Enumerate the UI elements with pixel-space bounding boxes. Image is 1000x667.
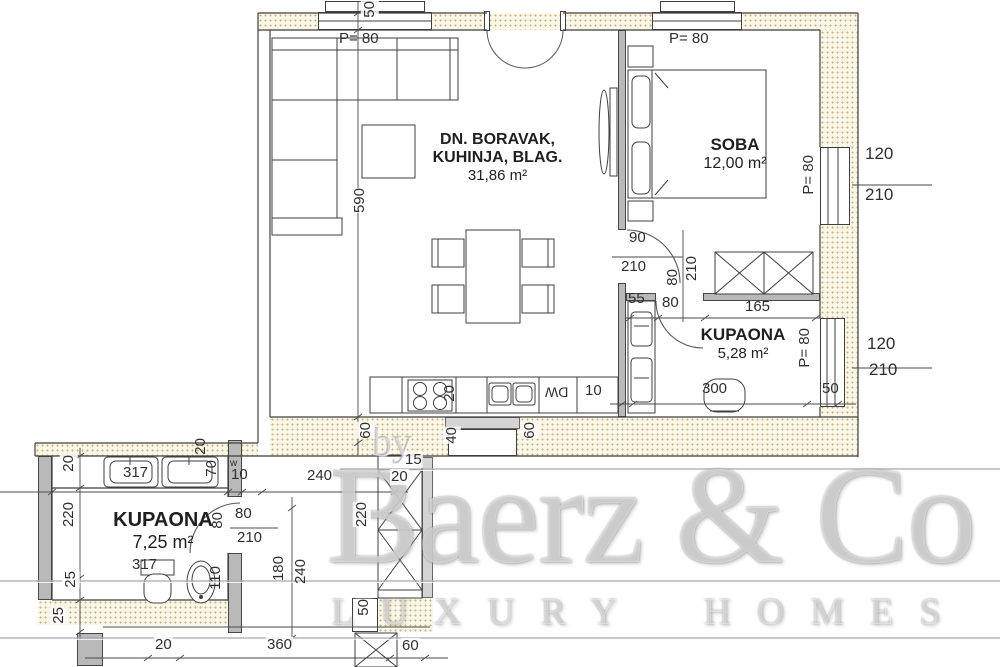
dim-kitchen-20: 20 [441, 385, 459, 402]
bath2-area: 7,25 m² [108, 532, 218, 553]
dim-wall-40: 40 [443, 427, 461, 444]
dim-p80-bath1-window: P= 80 [796, 328, 814, 368]
bath1-name: KUPAONA [693, 325, 793, 345]
dim-wall-60b: 60 [521, 422, 539, 439]
dim-shaft-50: 50 [355, 599, 373, 616]
dim-bath1-window-210: 210 [868, 361, 898, 379]
window-top-right [652, 12, 742, 30]
dim-20-bottom: 20 [154, 637, 173, 653]
watermark-line-top [340, 468, 1000, 470]
wall-annex-left [38, 456, 52, 600]
dim-annex-20: 20 [60, 455, 78, 472]
dim-annex-240: 240 [292, 559, 310, 584]
room-label-bedroom: SOBA 12,00 m² [693, 135, 777, 173]
room-label-bath1: KUPAONA 5,28 m² [693, 325, 793, 362]
dim-p80-top-left: P= 80 [338, 31, 380, 47]
dim-360: 360 [266, 637, 293, 653]
dim-annex-25b: 25 [50, 607, 68, 624]
dim-wall-60a: 60 [357, 422, 375, 439]
dim-shaft-20: 20 [390, 469, 409, 485]
bath1-area: 5,28 m² [693, 345, 793, 362]
wall-divider-upper [618, 30, 626, 230]
shaft-right-strip [422, 457, 433, 598]
dim-annex-180: 180 [270, 556, 288, 581]
dim-door-210: 210 [620, 259, 647, 275]
wall-annex-stub [77, 633, 103, 666]
room-label-bath2: KUPAONA 7,25 m² [108, 509, 218, 553]
dim-590: 590 [351, 188, 369, 213]
dim-kitchen-10: 10 [584, 383, 603, 399]
wall-annex-right-lower [228, 553, 242, 633]
living-area: 31,86 m² [415, 167, 580, 184]
dim-shaft-60: 60 [401, 638, 420, 654]
dim-annexdoor-210: 210 [236, 530, 263, 546]
dim-bathdoor-80: 80 [664, 269, 682, 286]
living-name-line2: KUHINJA, BLAG. [415, 149, 580, 167]
dim-shaft-220: 220 [353, 502, 371, 527]
dim-annex-317a: 317 [122, 465, 149, 481]
dim-annex-20-top: 20 [192, 438, 210, 455]
floor-plan: by Baerz & Co LUXURY HOMES DN. BORAVAK, … [0, 0, 1000, 667]
wall-shaft-step [378, 598, 433, 632]
dim-bath1-55: 55 [627, 291, 646, 307]
dim-p80-top-right: P= 80 [668, 31, 710, 47]
dim-annex-110: 110 [207, 566, 225, 590]
bedroom-name: SOBA [693, 135, 777, 155]
watermark-line-mid [0, 580, 1000, 582]
entry-door-jamb-right [560, 11, 566, 31]
window-top-right-sill [660, 1, 735, 12]
dim-annex-220: 220 [60, 502, 78, 527]
watermark-line-bottom [0, 637, 1000, 639]
dim-bath1-165: 165 [744, 299, 771, 315]
dim-annexdoor-80: 80 [234, 506, 253, 522]
dim-bath1-window-120: 120 [866, 335, 896, 353]
dim-50-top: 50 [361, 1, 379, 18]
dim-shaft-15: 15 [404, 452, 423, 468]
dim-bedroom-window-120: 120 [864, 145, 894, 163]
dim-bathdoor-210: 210 [683, 256, 701, 281]
dim-door-90: 90 [628, 230, 647, 246]
dim-bedroom-window-210: 210 [864, 186, 894, 204]
dim-annex-25a: 25 [62, 571, 80, 588]
dishwasher-label: DW [544, 385, 569, 400]
dim-bath1-80: 80 [661, 295, 680, 311]
window-bedroom-right [820, 147, 850, 225]
dim-p80-bedroom-window: P= 80 [800, 155, 818, 195]
living-name-line1: DN. BORAVAK, [415, 131, 580, 149]
dim-bath1-300: 300 [701, 381, 728, 397]
bath2-name: KUPAONA [108, 509, 218, 532]
dim-annex-70: 70 [203, 460, 221, 477]
dim-annexdoor-80v: 80 [209, 512, 227, 529]
dim-annex-317b: 317 [131, 557, 158, 573]
washer-mark: w [229, 459, 238, 470]
bedroom-area: 12,00 m² [693, 155, 777, 173]
room-label-living: DN. BORAVAK, KUHINJA, BLAG. 31,86 m² [415, 131, 580, 184]
entry-door-jamb-left [484, 11, 490, 31]
wall-divider-lower [618, 283, 626, 417]
dim-bath1-50: 50 [821, 381, 840, 397]
dim-240: 240 [306, 468, 333, 484]
